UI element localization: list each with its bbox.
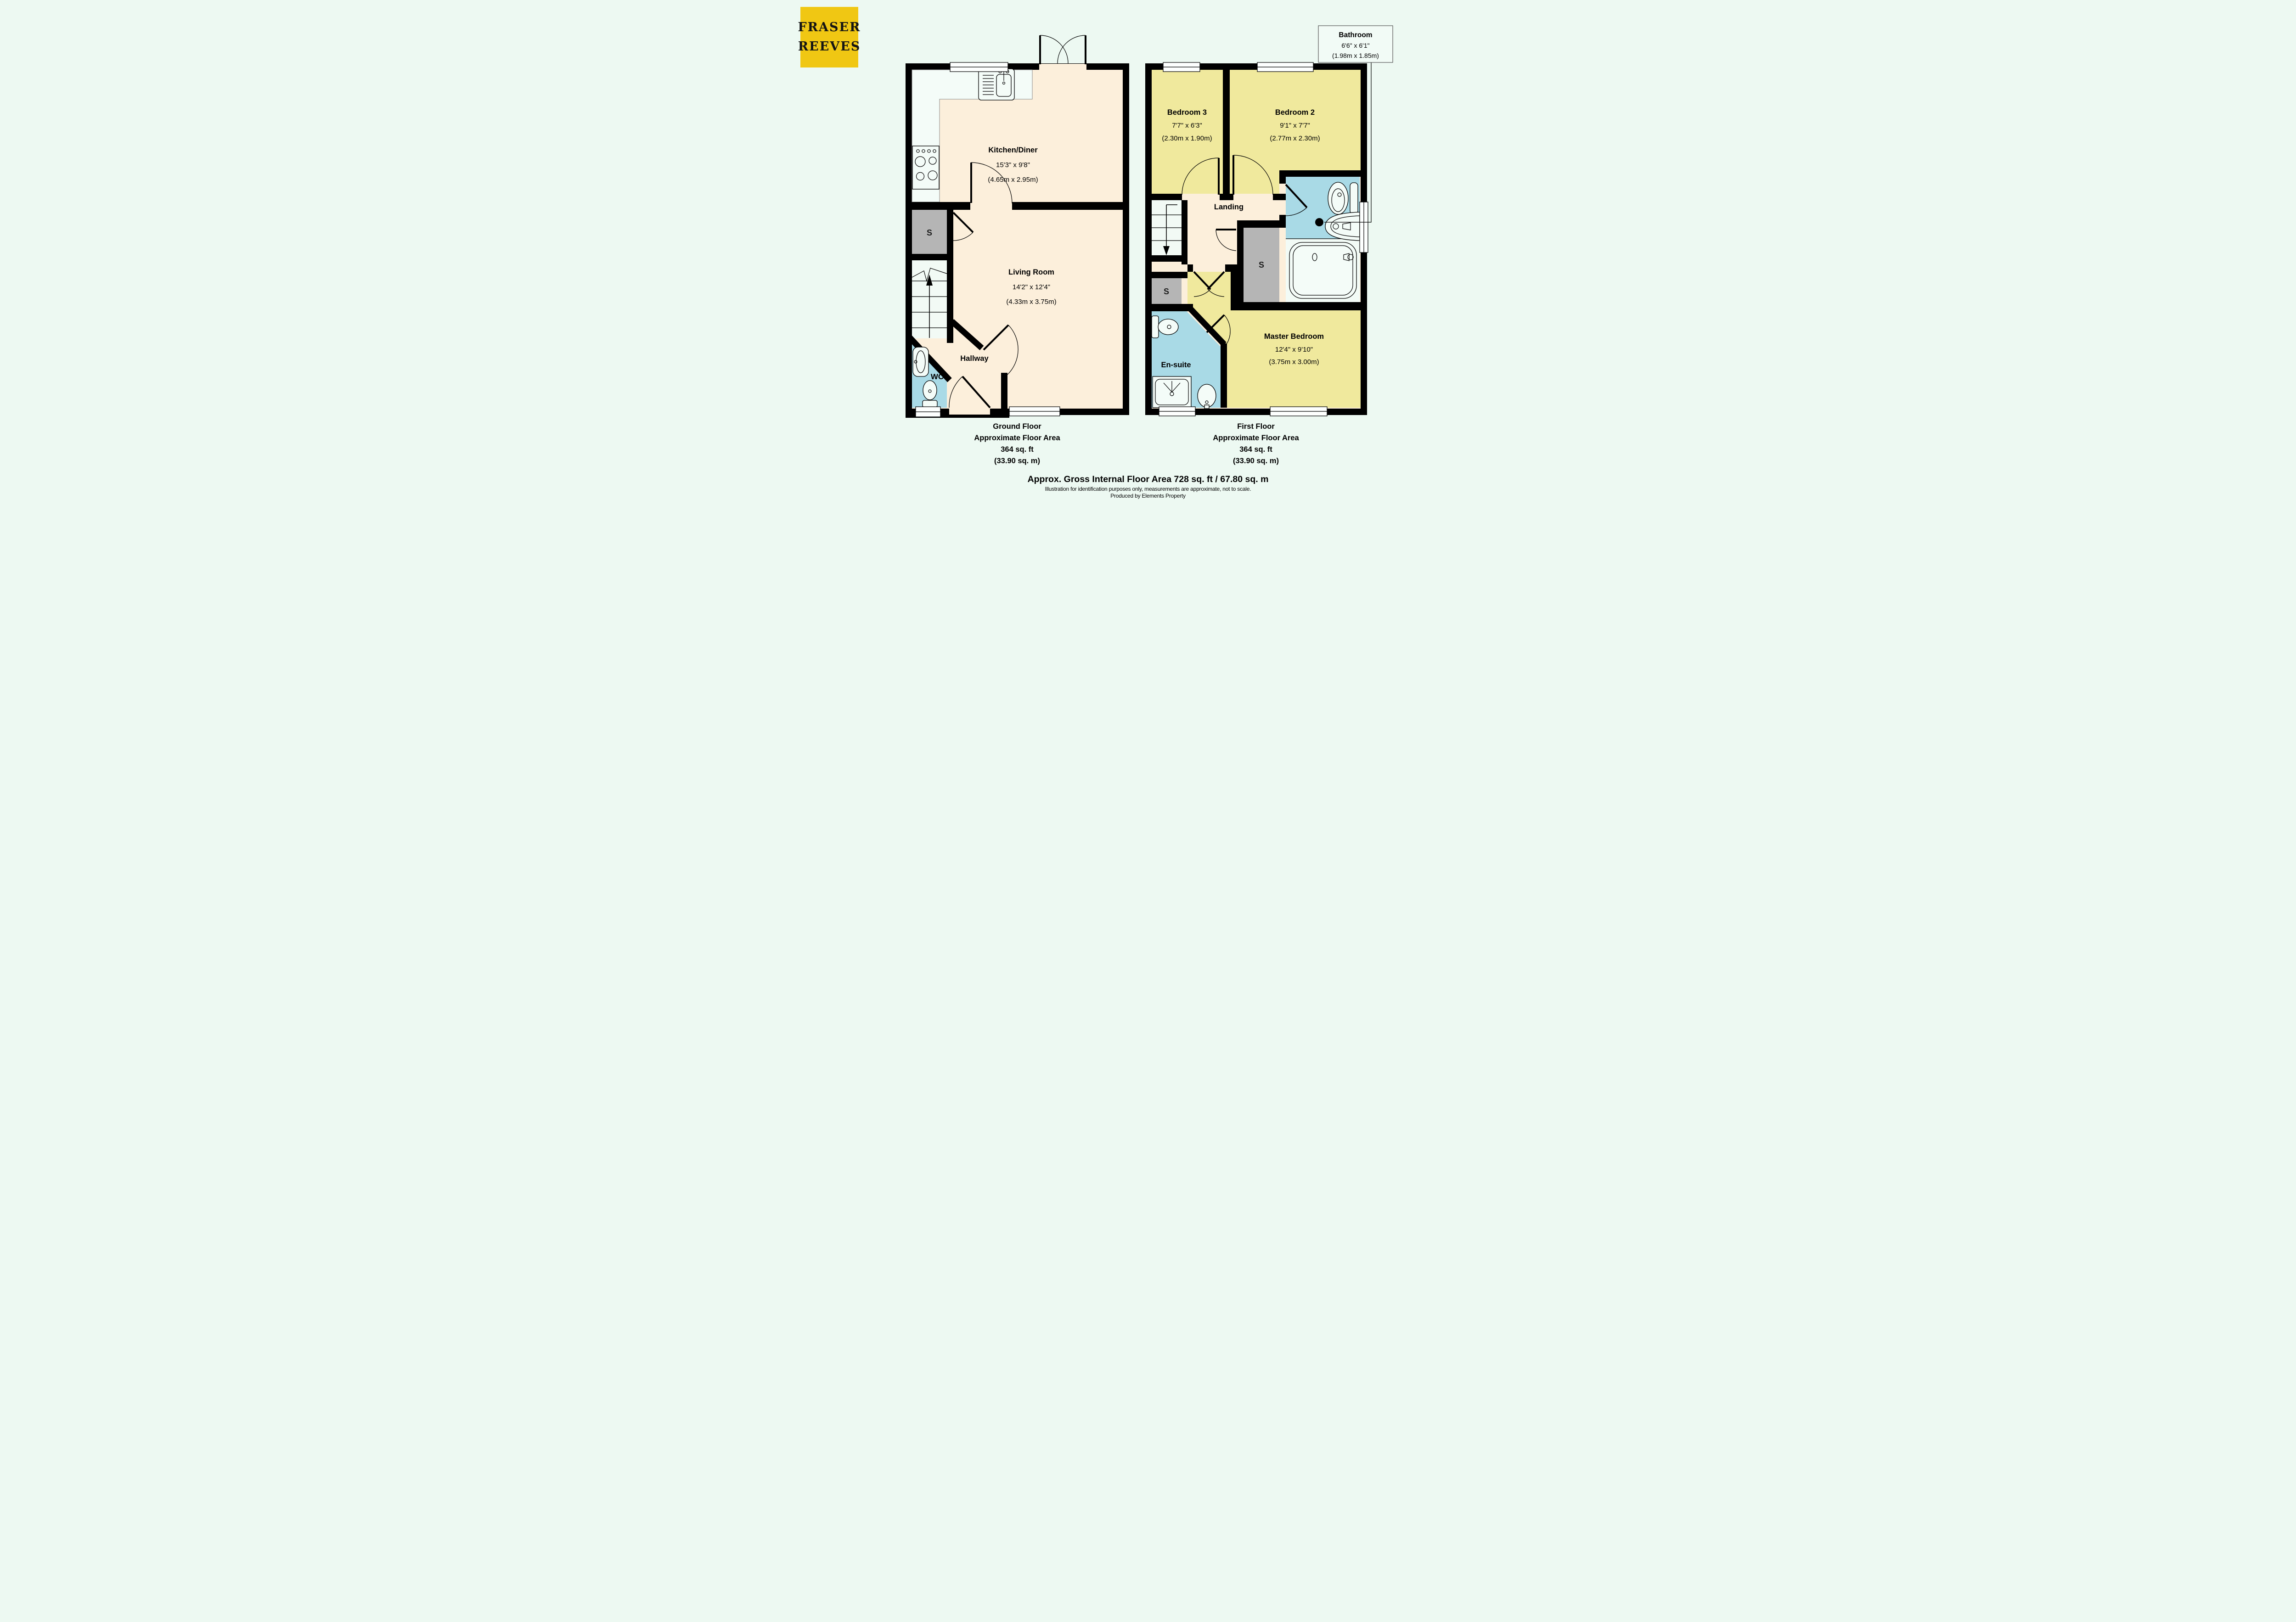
ff-caption-line2: Approximate Floor Area <box>1213 434 1299 442</box>
storage-mid-left-wall <box>1237 228 1244 302</box>
shower-icon <box>1153 376 1191 408</box>
landing-step-wall <box>1231 264 1237 310</box>
bathroom-window <box>1360 202 1368 253</box>
bedroom3-label: Bedroom 3 <box>1167 108 1206 117</box>
floorplan-canvas: FRASER REEVES <box>793 0 1503 501</box>
bath-icon <box>1289 242 1356 298</box>
ff-storage-left-label: S <box>1163 287 1169 296</box>
ff-storage-mid-label: S <box>1258 260 1264 269</box>
bathroom-callout-metric: (1.98m x 1.85m) <box>1332 52 1379 59</box>
bedroom-wall-a <box>1152 194 1182 200</box>
first-floor-plan: Bedroom 3 7'7" x 6'3" (2.30m x 1.90m) Be… <box>1145 26 1393 416</box>
living-room-label: Living Room <box>1008 268 1054 276</box>
bedroom2-bathroom-wall <box>1279 170 1361 177</box>
produced-by-text: Produced by Elements Property <box>1110 493 1186 499</box>
wc-toilet-icon <box>923 381 937 407</box>
ff-caption-line3: 364 sq. ft <box>1239 445 1272 454</box>
bedroom2-dims-metric: (2.77m x 2.30m) <box>1270 135 1320 142</box>
landing-label: Landing <box>1214 203 1243 211</box>
french-doors <box>1039 35 1086 71</box>
kitchen-dims-metric: (4.65m x 2.95m) <box>988 176 1038 184</box>
stairs-bottom-wall <box>1145 255 1187 262</box>
ff-top-window-left <box>1163 62 1200 72</box>
bedroom-divider-wall <box>1223 70 1230 200</box>
bathroom-callout-imperial: 6'6" x 6'1" <box>1341 42 1369 49</box>
ensuite-right-wall <box>1221 343 1227 408</box>
storage-mid-top-wall <box>1237 220 1286 228</box>
living-room-dims-imperial: 14'2" x 12'4" <box>1012 283 1050 291</box>
wc-sink-icon <box>913 347 929 376</box>
floorplan-page: FRASER REEVES <box>793 0 1503 501</box>
logo-background <box>800 7 858 67</box>
gf-bottom-window-left <box>916 407 940 417</box>
living-room-dims-metric: (4.33m x 3.75m) <box>1006 298 1056 306</box>
ff-bottom-window-right <box>1270 407 1327 416</box>
first-floor-caption: First Floor Approximate Floor Area 364 s… <box>1213 422 1299 465</box>
disclaimer-text: Illustration for identification purposes… <box>1045 486 1251 492</box>
gf-storage-bottom-wall <box>912 254 953 260</box>
bathroom-bottom-wall <box>1237 302 1361 310</box>
gf-storage-label: S <box>926 228 932 237</box>
ceiling-light-icon <box>1315 218 1323 226</box>
staircase-down-icon <box>1152 200 1182 255</box>
gf-caption-line2: Approximate Floor Area <box>974 434 1060 442</box>
wc-label: WC <box>930 372 943 381</box>
ensuite-label: En-suite <box>1161 361 1191 369</box>
stove-icon <box>912 146 939 189</box>
gf-caption-line1: Ground Floor <box>993 422 1041 431</box>
gf-top-window <box>950 62 1008 72</box>
gf-caption-line4: (33.90 sq. m) <box>994 457 1040 465</box>
staircase-up-icon <box>912 260 947 338</box>
bedroom2-dims-imperial: 9'1" x 7'7" <box>1280 122 1310 129</box>
master-dims-metric: (3.75m x 3.00m) <box>1269 358 1319 366</box>
ff-top-window-right <box>1257 62 1313 72</box>
bathroom-callout-label: Bathroom <box>1339 31 1372 39</box>
gf-divider-wall-left <box>912 202 970 210</box>
kitchen-dims-imperial: 15'3" x 9'8" <box>996 161 1030 169</box>
bedroom2-label: Bedroom 2 <box>1275 108 1314 117</box>
kitchen-label: Kitchen/Diner <box>988 146 1038 154</box>
ground-floor-caption: Ground Floor Approximate Floor Area 364 … <box>974 422 1060 465</box>
fraser-reeves-logo: FRASER REEVES <box>798 7 861 67</box>
storage-left-top-wall <box>1145 272 1187 278</box>
bedroom3-dims-imperial: 7'7" x 6'3" <box>1172 122 1202 129</box>
gf-divider-wall-right <box>1012 202 1123 210</box>
footer: Approx. Gross Internal Floor Area 728 sq… <box>1027 474 1268 499</box>
gross-area-text: Approx. Gross Internal Floor Area 728 sq… <box>1027 474 1268 484</box>
kitchen-sink-icon <box>979 69 1014 100</box>
stairs-landing-wall <box>1182 200 1187 264</box>
landing-bottom-wall-a <box>1187 264 1193 272</box>
bathroom-toilet-icon <box>1328 182 1358 214</box>
ground-floor-plan: Kitchen/Diner 15'3" x 9'8" (4.65m x 2.95… <box>906 35 1129 418</box>
bedroom-wall-b <box>1220 194 1233 200</box>
master-bedroom-label: Master Bedroom <box>1264 332 1323 341</box>
logo-line2: REEVES <box>798 39 861 54</box>
bedroom-wall-c <box>1273 194 1286 200</box>
hallway-label: Hallway <box>960 354 989 363</box>
storage-left-bottom-wall <box>1145 304 1193 311</box>
bedroom3-dims-metric: (2.30m x 1.90m) <box>1162 135 1212 142</box>
bathroom-wall-top <box>1279 177 1286 184</box>
ff-caption-line1: First Floor <box>1237 422 1275 431</box>
gf-caption-line3: 364 sq. ft <box>1001 445 1034 454</box>
ff-bottom-window-left <box>1159 407 1195 416</box>
ff-caption-line4: (33.90 sq. m) <box>1233 457 1279 465</box>
gf-bottom-window-right <box>1009 407 1060 416</box>
master-dims-imperial: 12'4" x 9'10" <box>1275 346 1312 354</box>
logo-line1: FRASER <box>798 20 861 34</box>
hallway-living-wall <box>1001 373 1007 409</box>
